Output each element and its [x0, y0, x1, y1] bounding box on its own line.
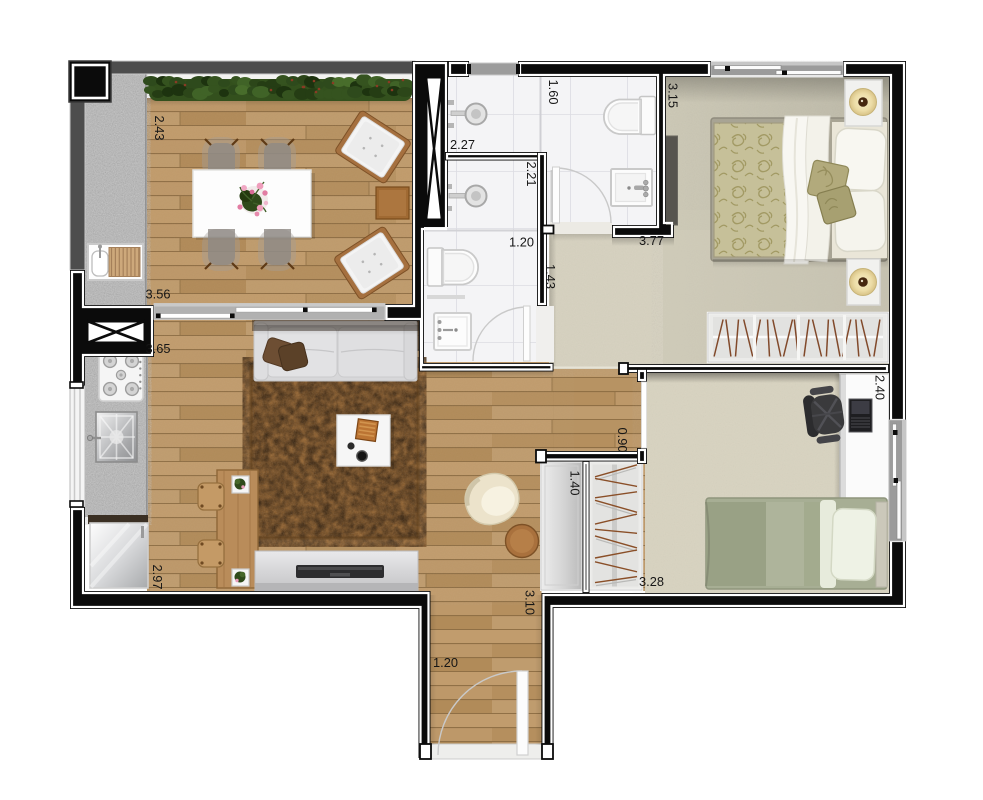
svg-text:2.97: 2.97: [150, 565, 165, 590]
svg-text:1.40: 1.40: [568, 471, 583, 496]
svg-text:3.28: 3.28: [639, 574, 664, 589]
svg-text:2.43: 2.43: [152, 116, 167, 141]
svg-text:1.20: 1.20: [433, 655, 458, 670]
svg-text:3.65: 3.65: [146, 341, 171, 356]
svg-text:0.90: 0.90: [615, 428, 630, 453]
svg-text:3.10: 3.10: [523, 590, 538, 615]
svg-text:3.77: 3.77: [639, 233, 664, 248]
svg-text:2.27: 2.27: [450, 137, 475, 152]
svg-text:2.21: 2.21: [524, 162, 539, 187]
svg-text:1.20: 1.20: [509, 234, 534, 249]
svg-text:1.60: 1.60: [546, 80, 561, 105]
svg-text:2.40: 2.40: [873, 375, 888, 400]
svg-text:3.56: 3.56: [146, 286, 171, 301]
svg-text:3.15: 3.15: [666, 83, 681, 108]
svg-text:1.43: 1.43: [543, 264, 558, 289]
